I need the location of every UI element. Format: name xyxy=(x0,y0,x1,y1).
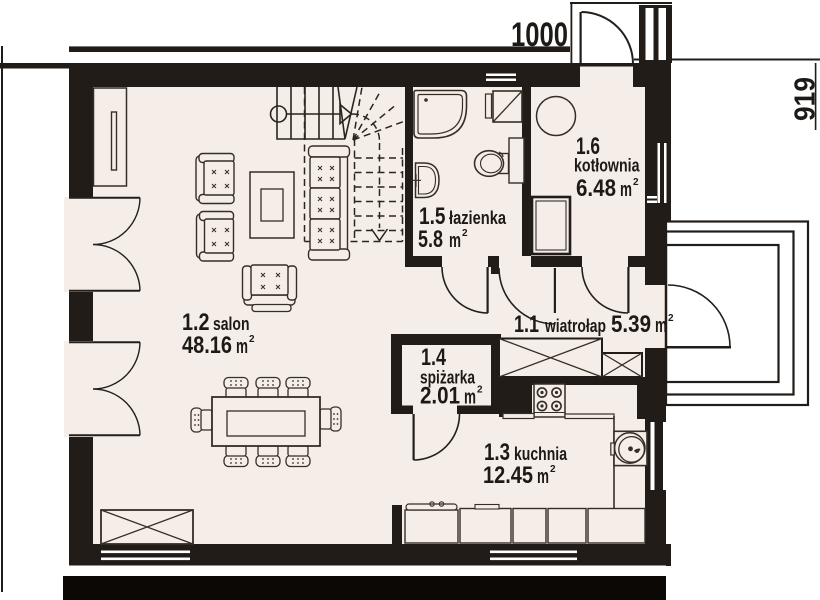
svg-text:m: m xyxy=(655,315,667,337)
svg-text:kotłownia: kotłownia xyxy=(574,156,640,176)
svg-text:2.01: 2.01 xyxy=(420,383,460,410)
svg-text:48.16: 48.16 xyxy=(182,332,232,359)
svg-text:2: 2 xyxy=(477,385,483,396)
svg-text:2: 2 xyxy=(249,334,255,345)
svg-text:2: 2 xyxy=(633,177,639,188)
svg-text:łazienka: łazienka xyxy=(449,208,507,228)
svg-text:1.1: 1.1 xyxy=(514,311,539,338)
svg-text:2: 2 xyxy=(668,313,674,324)
svg-text:6.48: 6.48 xyxy=(576,175,616,202)
svg-text:m: m xyxy=(537,466,549,488)
svg-text:kuchnia: kuchnia xyxy=(514,444,568,464)
svg-text:2: 2 xyxy=(550,464,556,475)
svg-text:wiatrołap: wiatrołap xyxy=(544,316,606,336)
svg-text:5.8: 5.8 xyxy=(418,226,443,253)
svg-text:2: 2 xyxy=(462,228,468,239)
svg-text:m: m xyxy=(449,230,461,252)
svg-text:12.45: 12.45 xyxy=(483,462,533,489)
svg-text:salon: salon xyxy=(213,314,250,334)
svg-text:m: m xyxy=(464,387,476,409)
svg-text:m: m xyxy=(236,336,248,358)
svg-text:m: m xyxy=(620,179,632,201)
svg-text:1000: 1000 xyxy=(511,16,568,54)
svg-text:5.39: 5.39 xyxy=(611,311,651,338)
